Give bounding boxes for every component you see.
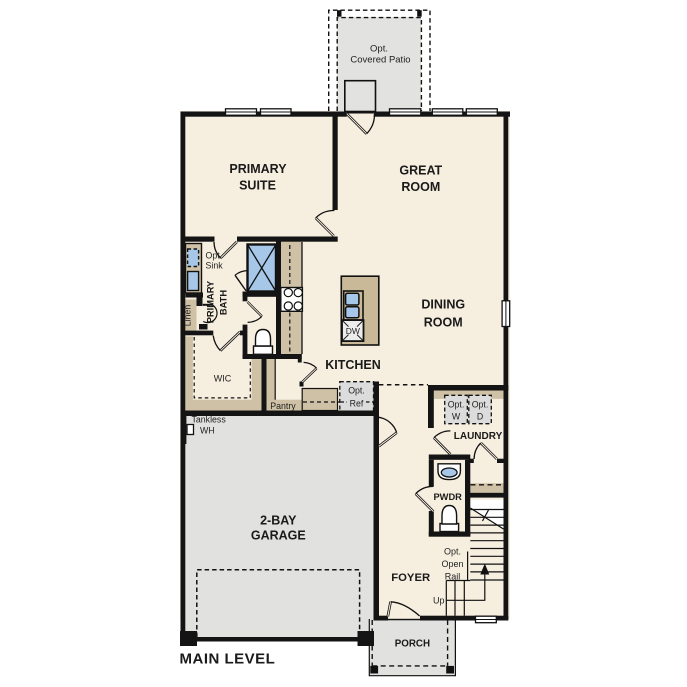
svg-text:PRIMARY: PRIMARY [229, 162, 287, 176]
svg-text:Covered Patio: Covered Patio [350, 55, 410, 66]
svg-text:Ref: Ref [350, 399, 364, 409]
svg-text:Opt.: Opt. [348, 386, 365, 396]
svg-text:D: D [477, 412, 483, 422]
svg-text:MAIN LEVEL: MAIN LEVEL [180, 651, 276, 668]
svg-text:Up: Up [433, 596, 445, 606]
svg-text:Opt.: Opt. [448, 400, 465, 410]
svg-text:LAUNDRY: LAUNDRY [454, 431, 503, 442]
svg-text:DW: DW [346, 326, 360, 336]
svg-text:GARAGE: GARAGE [251, 528, 306, 542]
svg-text:PORCH: PORCH [395, 639, 430, 650]
svg-text:Opt.: Opt. [370, 44, 388, 55]
svg-text:SUITE: SUITE [239, 179, 276, 193]
svg-text:2-BAY: 2-BAY [260, 514, 297, 528]
svg-text:KITCHEN: KITCHEN [325, 358, 381, 372]
svg-text:WIC: WIC [214, 374, 232, 384]
svg-text:PWDR: PWDR [433, 492, 462, 502]
svg-text:DINING: DINING [421, 298, 465, 312]
svg-text:BATH: BATH [219, 290, 229, 315]
svg-text:Open: Open [441, 559, 463, 569]
svg-text:FOYER: FOYER [391, 572, 430, 584]
svg-text:ROOM: ROOM [424, 316, 463, 330]
svg-text:Opt.: Opt. [444, 547, 461, 557]
svg-text:Opt.: Opt. [472, 400, 489, 410]
svg-text:W: W [452, 412, 461, 422]
svg-text:Opt.: Opt. [206, 251, 223, 261]
svg-text:Rail: Rail [445, 572, 461, 582]
svg-text:PRIMARY: PRIMARY [206, 280, 216, 323]
svg-text:ROOM: ROOM [401, 180, 440, 194]
svg-text:Sink: Sink [206, 261, 224, 271]
svg-text:WH: WH [200, 426, 215, 436]
svg-text:Pantry: Pantry [270, 401, 296, 411]
svg-text:GREAT: GREAT [399, 164, 442, 178]
